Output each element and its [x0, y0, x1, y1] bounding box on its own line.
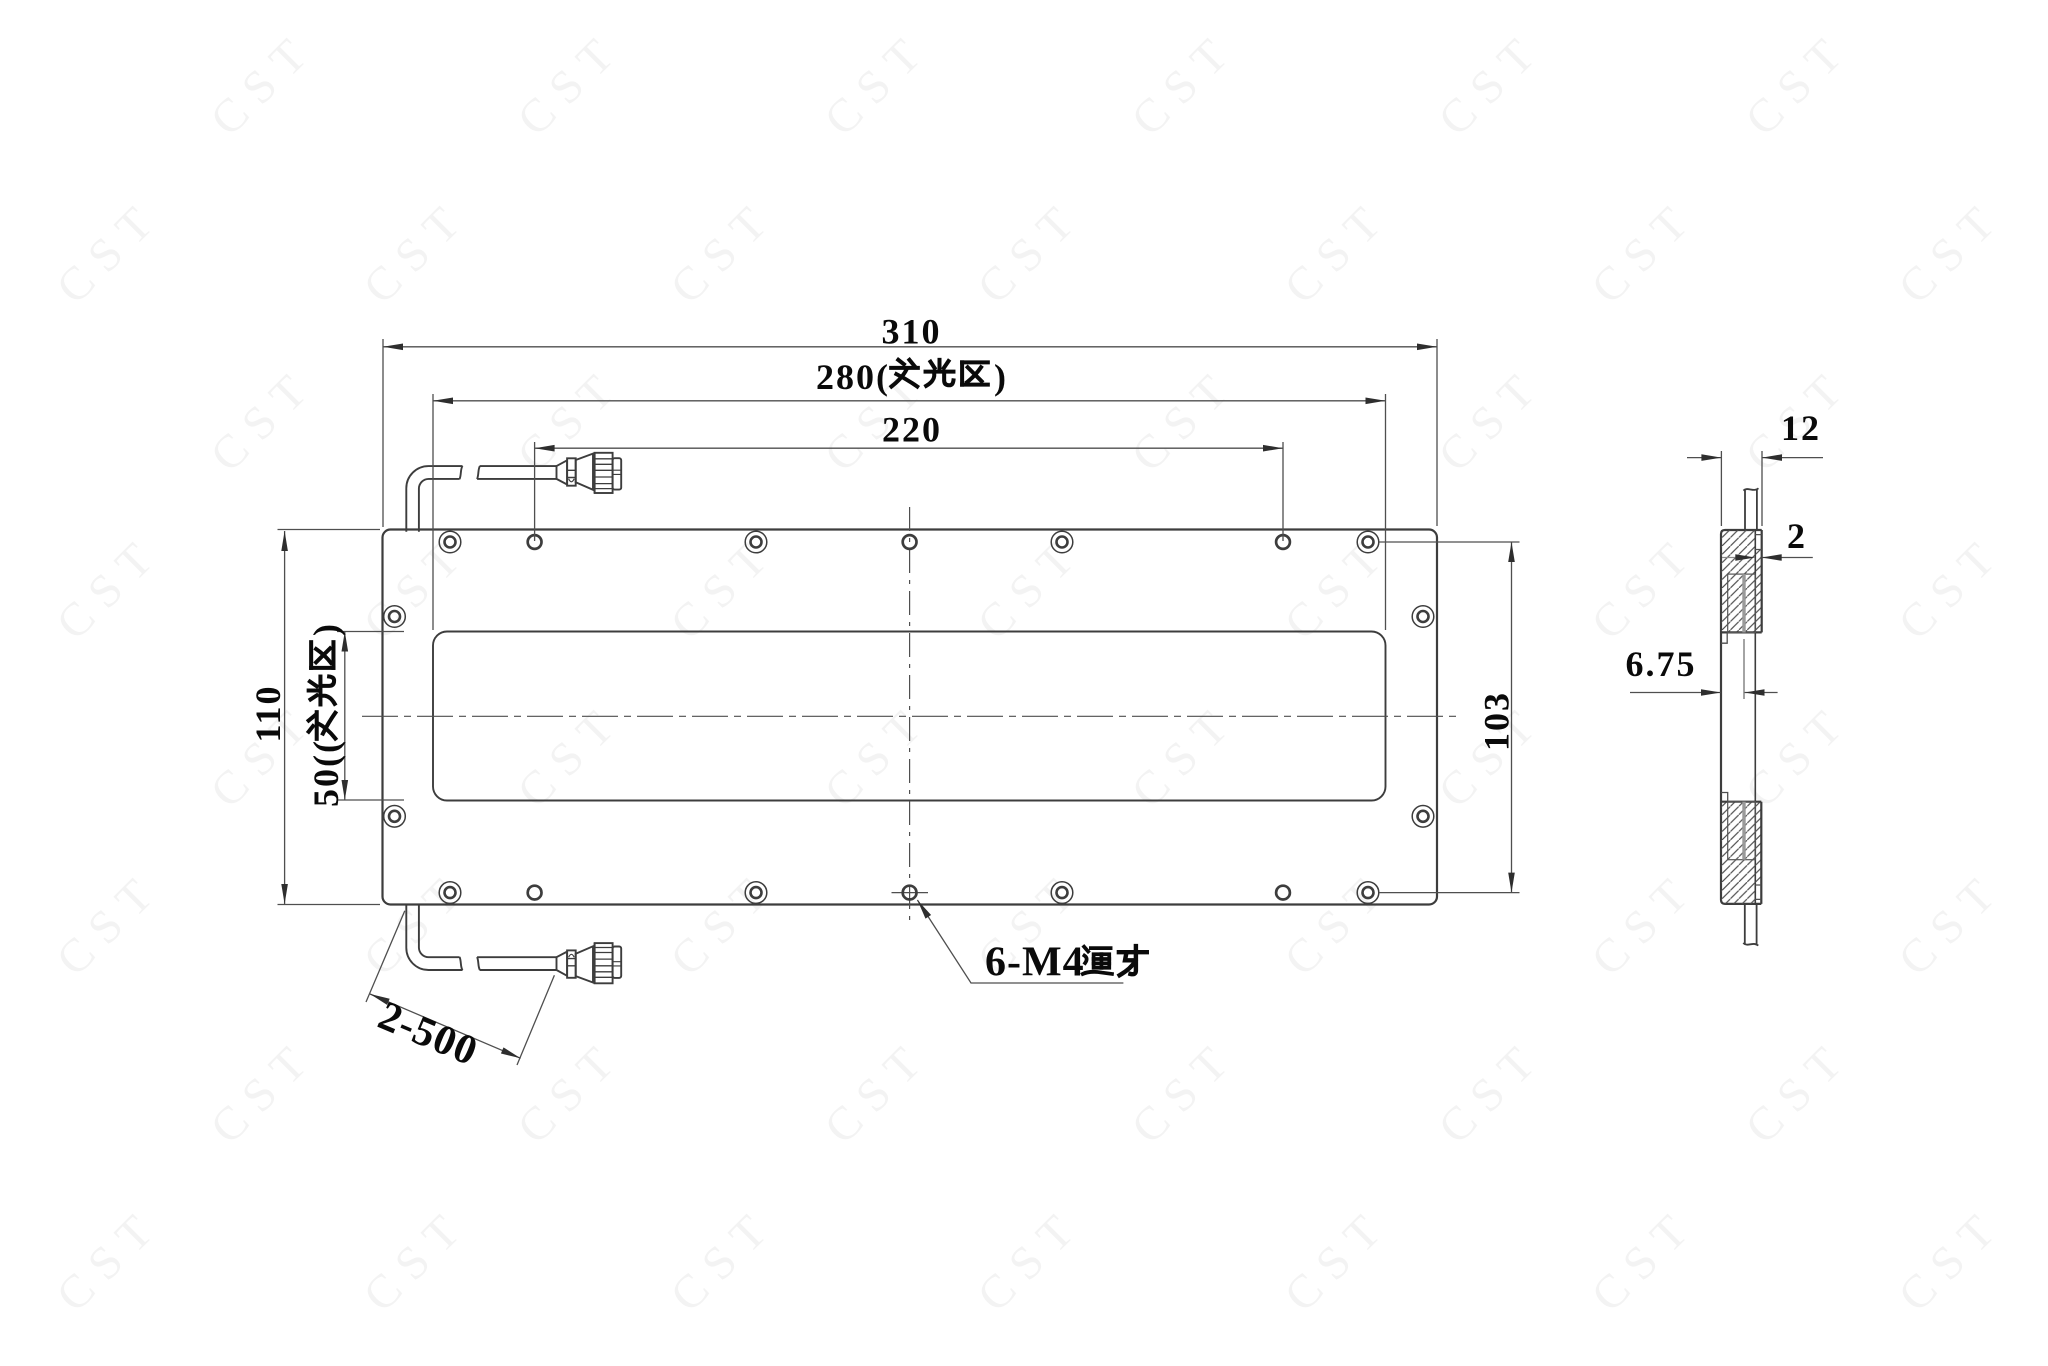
svg-text:CST: CST [661, 861, 786, 986]
svg-text:CST: CST [2043, 1029, 2048, 1154]
svg-text:CST: CST [1275, 189, 1400, 314]
svg-text:CST: CST [508, 357, 633, 482]
svg-text:CST: CST [2043, 693, 2048, 818]
svg-text:CST: CST [1889, 525, 2014, 650]
svg-text:CST: CST [201, 21, 326, 146]
svg-text:): ) [306, 622, 346, 636]
svg-text:6.75: 6.75 [1626, 644, 1697, 684]
svg-text:CST: CST [1736, 1029, 1861, 1154]
svg-text:CST: CST [815, 693, 940, 818]
svg-text:CST: CST [0, 21, 19, 146]
svg-text:CST: CST [1275, 1197, 1400, 1322]
svg-text:CST: CST [968, 189, 1093, 314]
svg-text:CST: CST [1889, 1197, 2014, 1322]
svg-text:): ) [994, 357, 1008, 397]
svg-text:CST: CST [508, 693, 633, 818]
svg-text:6-M4: 6-M4 [985, 940, 1085, 986]
svg-text:CST: CST [815, 1029, 940, 1154]
svg-text:CST: CST [661, 189, 786, 314]
svg-text:CST: CST [815, 21, 940, 146]
svg-text:CST: CST [1122, 21, 1247, 146]
svg-text:CST: CST [1122, 693, 1247, 818]
svg-text:CST: CST [201, 357, 326, 482]
svg-text:CST: CST [1122, 357, 1247, 482]
svg-text:CST: CST [1889, 189, 2014, 314]
svg-text:CST: CST [1582, 1197, 1707, 1322]
svg-text:CST: CST [201, 1029, 326, 1154]
svg-text:CST: CST [47, 189, 172, 314]
svg-text:CST: CST [1122, 1029, 1247, 1154]
svg-text:CST: CST [354, 1197, 479, 1322]
svg-text:CST: CST [2043, 357, 2048, 482]
svg-text:CST: CST [354, 189, 479, 314]
svg-text:CST: CST [661, 1197, 786, 1322]
svg-text:CST: CST [1275, 861, 1400, 986]
svg-text:CST: CST [1582, 525, 1707, 650]
svg-text:CST: CST [1429, 1029, 1554, 1154]
svg-text:CST: CST [1736, 21, 1861, 146]
svg-text:CST: CST [47, 525, 172, 650]
svg-text:CST: CST [0, 357, 19, 482]
svg-text:2-500: 2-500 [372, 993, 485, 1076]
svg-text:CST: CST [1582, 189, 1707, 314]
svg-text:CST: CST [508, 1029, 633, 1154]
svg-text:CST: CST [968, 1197, 1093, 1322]
svg-text:CST: CST [1429, 21, 1554, 146]
svg-text:CST: CST [0, 693, 19, 818]
svg-text:310: 310 [882, 312, 942, 352]
svg-text:CST: CST [1736, 693, 1861, 818]
svg-text:50((: 50(( [306, 739, 346, 807]
svg-text:280(: 280( [816, 357, 890, 397]
svg-text:CST: CST [47, 1197, 172, 1322]
svg-text:CST: CST [2043, 21, 2048, 146]
svg-text:CST: CST [0, 1029, 19, 1154]
svg-text:110: 110 [248, 684, 288, 742]
svg-text:12: 12 [1781, 408, 1821, 448]
svg-text:CST: CST [508, 21, 633, 146]
svg-text:CST: CST [1429, 357, 1554, 482]
svg-text:220: 220 [882, 410, 942, 450]
svg-text:103: 103 [1477, 691, 1517, 751]
svg-text:CST: CST [1582, 861, 1707, 986]
svg-text:CST: CST [47, 861, 172, 986]
svg-text:2: 2 [1787, 516, 1807, 556]
svg-text:CST: CST [1889, 861, 2014, 986]
